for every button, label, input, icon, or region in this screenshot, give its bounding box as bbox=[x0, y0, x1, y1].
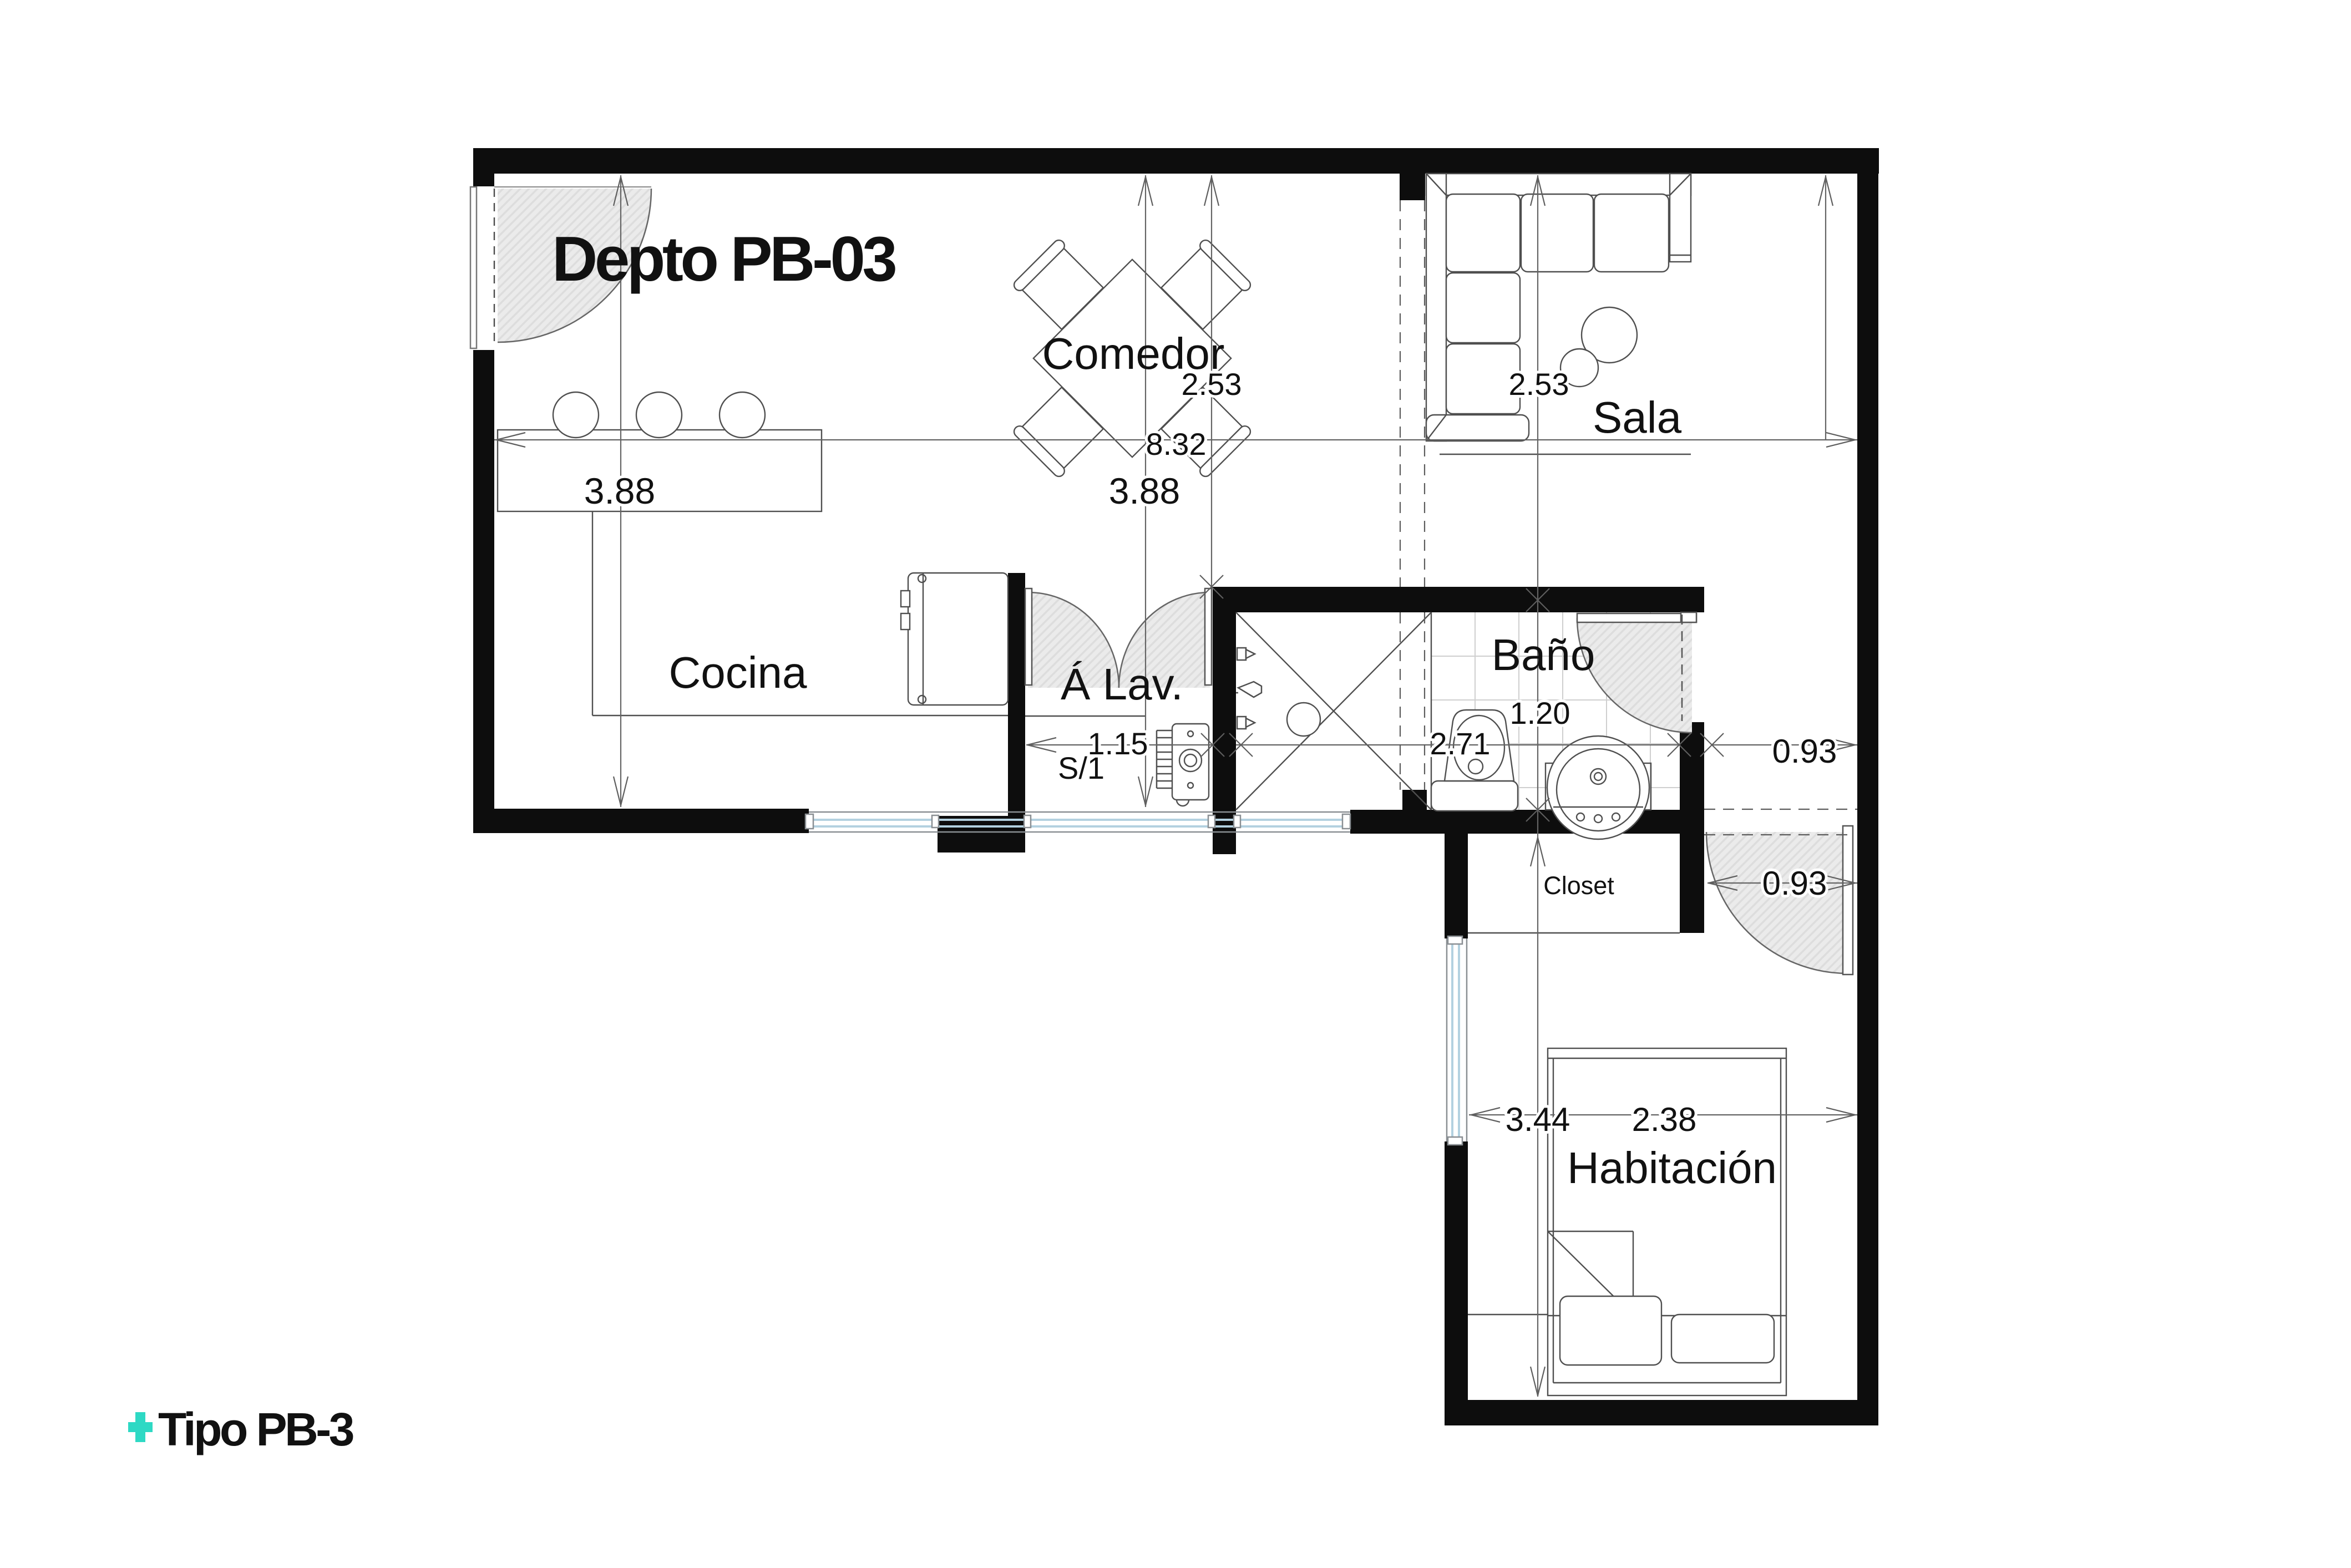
svg-text:Á Lav.: Á Lav. bbox=[1061, 659, 1183, 709]
svg-text:1.15: 1.15 bbox=[1088, 726, 1148, 761]
svg-text:3.88: 3.88 bbox=[1109, 470, 1180, 511]
svg-text:Baño: Baño bbox=[1492, 630, 1595, 679]
svg-text:Closet: Closet bbox=[1543, 871, 1614, 900]
svg-text:0.93: 0.93 bbox=[1772, 733, 1837, 770]
svg-text:0.93: 0.93 bbox=[1762, 865, 1827, 902]
svg-text:Tipo PB-3: Tipo PB-3 bbox=[158, 1403, 353, 1455]
svg-text:2.38: 2.38 bbox=[1632, 1101, 1697, 1138]
svg-text:2.53: 2.53 bbox=[1509, 367, 1569, 402]
svg-text:2.53: 2.53 bbox=[1182, 367, 1242, 402]
svg-text:Depto PB-03: Depto PB-03 bbox=[552, 224, 895, 295]
svg-text:1.20: 1.20 bbox=[1510, 696, 1570, 730]
svg-text:8.32: 8.32 bbox=[1146, 427, 1207, 461]
svg-text:Cocina: Cocina bbox=[668, 648, 807, 697]
svg-text:2.71: 2.71 bbox=[1430, 726, 1491, 761]
svg-text:3.88: 3.88 bbox=[584, 470, 655, 511]
svg-text:3.44: 3.44 bbox=[1506, 1101, 1570, 1138]
svg-text:Habitación: Habitación bbox=[1567, 1143, 1777, 1193]
svg-text:Sala: Sala bbox=[1593, 393, 1682, 442]
